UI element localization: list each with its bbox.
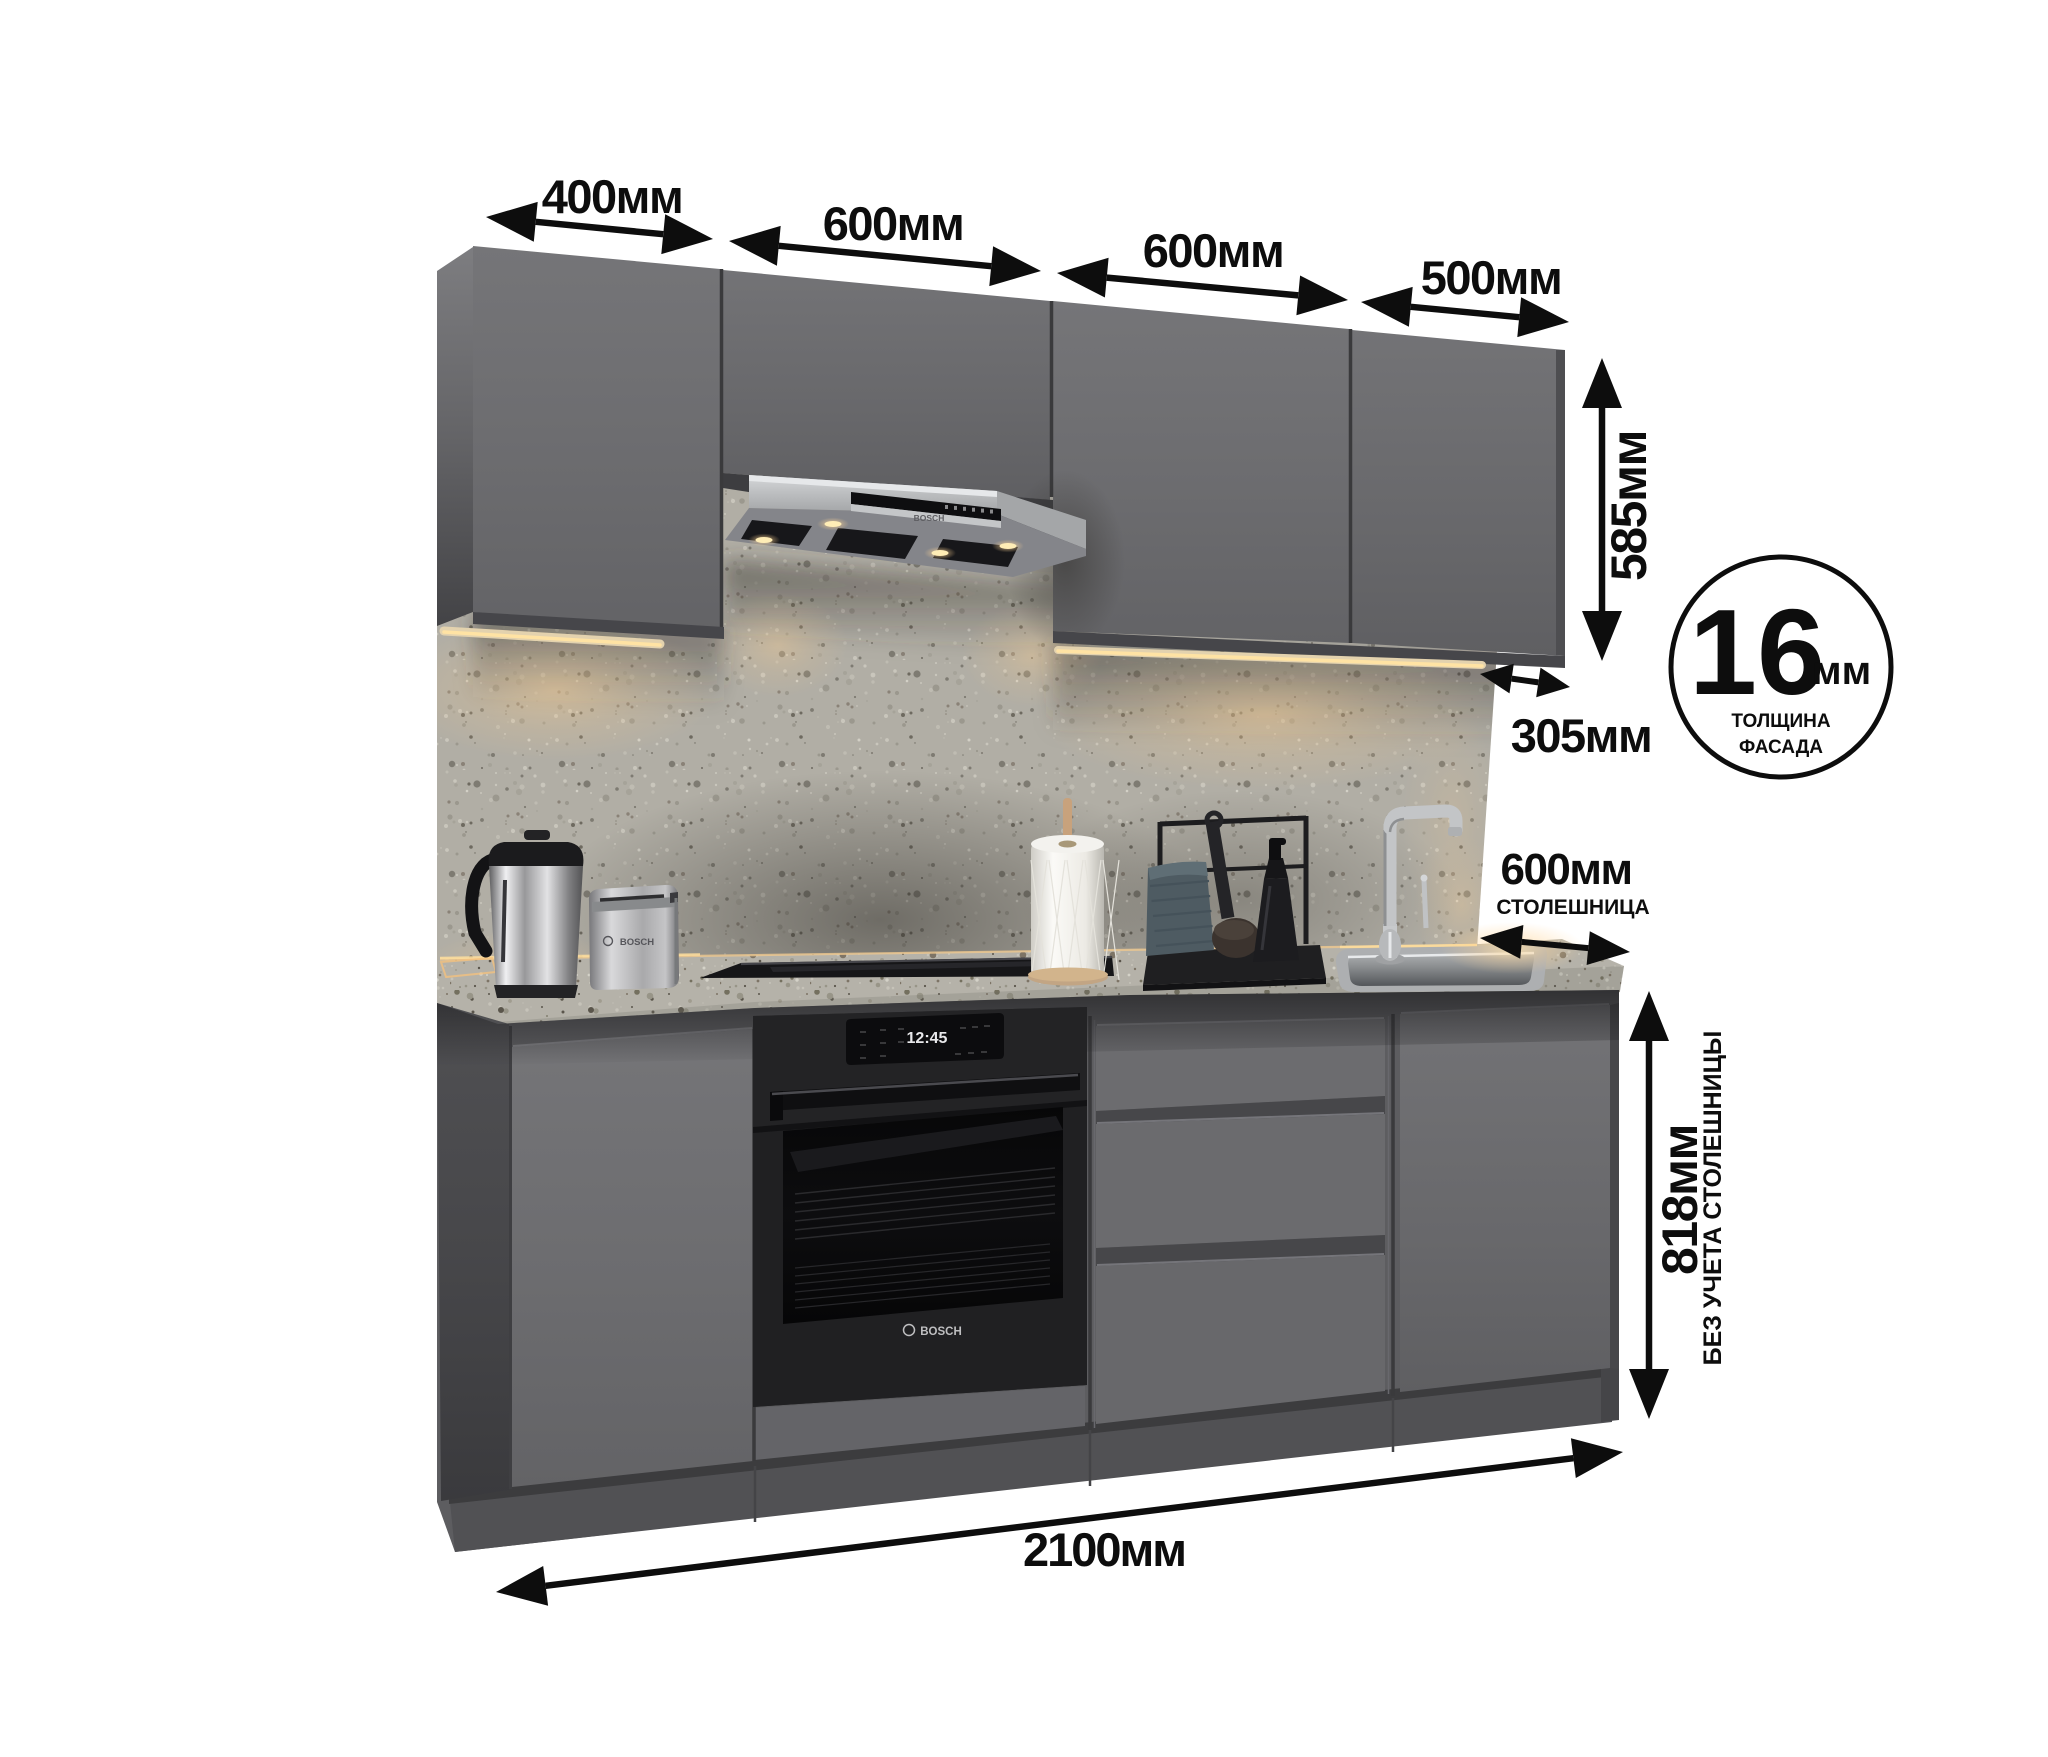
svg-text:585мм: 585мм <box>1601 431 1657 581</box>
svg-text:600мм: 600мм <box>823 197 963 250</box>
svg-text:СТОЛЕШНИЦА: СТОЛЕШНИЦА <box>1496 896 1649 919</box>
svg-text:400мм: 400мм <box>542 170 682 223</box>
svg-text:16: 16 <box>1689 584 1825 720</box>
svg-text:BOSCH: BOSCH <box>920 1326 962 1338</box>
svg-text:ТОЛЩИНА: ТОЛЩИНА <box>1731 711 1831 732</box>
svg-text:ФАСАДА: ФАСАДА <box>1739 737 1823 758</box>
svg-text:12:45: 12:45 <box>907 1030 948 1047</box>
svg-text:500мм: 500мм <box>1421 251 1561 304</box>
svg-text:2100мм: 2100мм <box>1023 1523 1185 1576</box>
svg-text:305мм: 305мм <box>1511 709 1651 762</box>
svg-text:мм: мм <box>1812 649 1871 693</box>
svg-text:БЕЗ УЧЕТА СТОЛЕШНИЦЫ: БЕЗ УЧЕТА СТОЛЕШНИЦЫ <box>1699 1031 1727 1366</box>
svg-text:BOSCH: BOSCH <box>620 937 654 948</box>
svg-text:600мм: 600мм <box>1500 845 1631 894</box>
svg-text:600мм: 600мм <box>1143 224 1283 277</box>
svg-text:BOSCH: BOSCH <box>914 513 945 523</box>
